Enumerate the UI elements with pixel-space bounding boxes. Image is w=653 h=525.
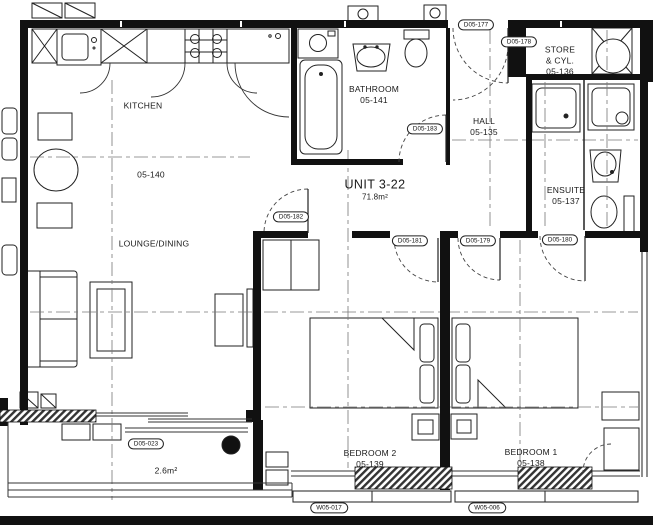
washing-machine [298,29,338,58]
room-number-kitchen: 05-140 [137,169,165,180]
kitchen-counter [32,29,289,65]
room-label-hall: HALL 05-135 [470,116,498,138]
dining-chair [37,203,72,228]
floorplan-unit-3-22: KITCHEN 05-140 LOUNGE/DINING BATHROOM 05… [0,0,653,525]
pillow [456,365,470,403]
ensuite-toilet [591,196,634,232]
pillow [420,365,434,403]
balcony-area-label: 2.6m² [155,465,178,476]
room-label-bedroom2: BEDROOM 2 05-139 [344,448,397,470]
dining-set [34,113,78,228]
bed-1 [452,318,578,408]
door-tag-d05-182: D05-182 [273,211,309,222]
balcony-column [222,436,240,454]
window-hatch-piers [0,410,592,489]
hall-door-arc [453,45,508,100]
desk [602,392,639,420]
sofa [25,271,77,367]
door-tag-d05-179: D05-179 [460,235,496,246]
bathroom-basin [353,44,390,71]
cabinet-door-arcs [80,63,289,117]
coffee-table [90,282,132,358]
door-tag-d05-178: D05-178 [501,36,537,47]
door-tag-d05-180: D05-180 [542,234,578,245]
adjacent-shower [588,84,634,130]
pillow [420,324,434,362]
room-label-bedroom1: BEDROOM 1 05-138 [505,447,558,469]
unit-name: UNIT 3-22 [344,177,405,193]
tv-unit [215,289,253,347]
bathtub [300,60,342,154]
hot-water-cylinder [596,39,630,73]
door-tag-d05-177: D05-177 [458,19,494,30]
window-tag-w05-006: W05-006 [468,502,506,513]
door-tag-d05-181: D05-181 [392,235,428,246]
bathroom-door-arc [399,115,446,162]
room-label-ensuite: ENSUITE 05-137 [547,185,585,207]
window-tag-w05-017: W05-017 [310,502,348,513]
ensuite-basin [590,150,621,182]
dining-chair [38,113,72,140]
ensuite-shower [532,84,580,132]
room-label-store: STORE & CYL. 05-136 [545,44,575,77]
door-tag-d05-023: D05-023 [128,438,164,449]
room-label-lounge-dining: LOUNGE/DINING [119,238,190,249]
bathroom-toilet [404,30,429,67]
bed-2 [310,318,438,408]
unit-label: UNIT 3-22 71.8m² [344,177,405,204]
dining-table [34,149,78,191]
door-tag-d05-183: D05-183 [407,123,443,134]
closet [604,428,639,470]
room-label-bathroom: BATHROOM 05-141 [349,84,399,106]
room-label-kitchen: KITCHEN [124,100,163,111]
balcony-railing [8,422,292,497]
store-cupboard [592,28,632,74]
pillow [456,324,470,362]
unit-area: 71.8m² [344,193,405,203]
